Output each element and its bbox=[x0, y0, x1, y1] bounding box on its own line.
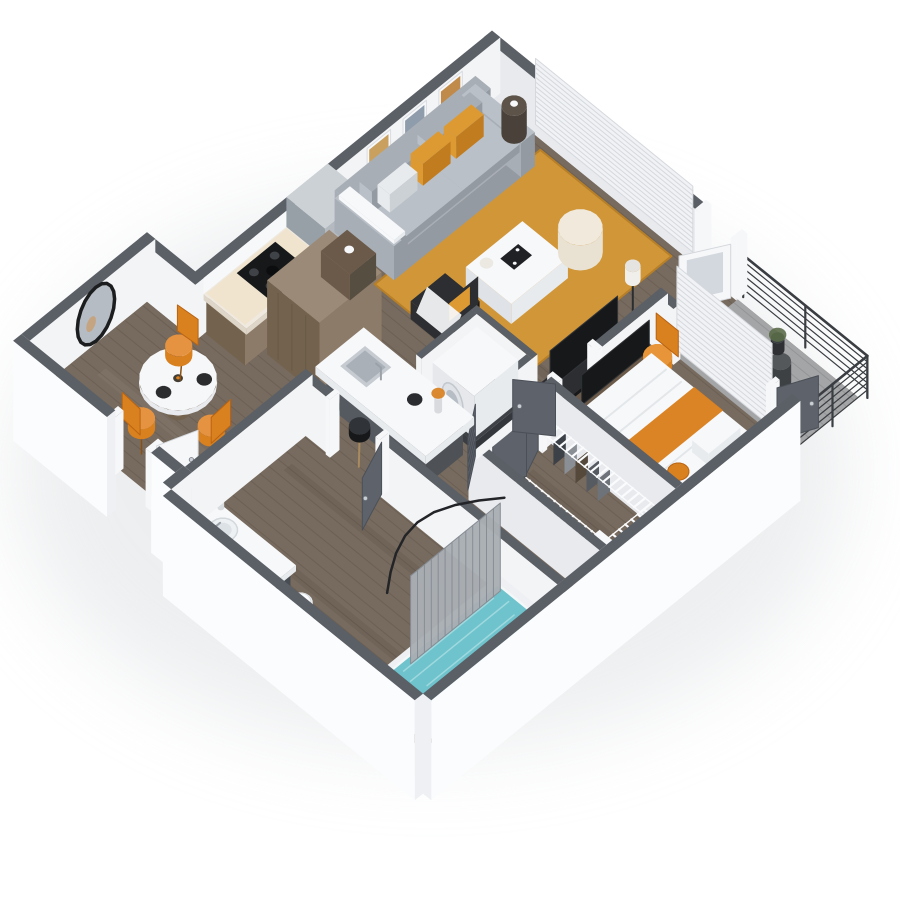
place-setting bbox=[156, 386, 172, 399]
wall-exterior-southwest bbox=[107, 410, 115, 517]
bathroom-door-handle bbox=[363, 496, 367, 500]
floorplan-page bbox=[0, 0, 900, 900]
decor-tray bbox=[480, 258, 494, 269]
bathroom-door-frame bbox=[326, 397, 330, 458]
bar-stool bbox=[349, 417, 370, 434]
bedroom-balcony-door-handle bbox=[810, 401, 814, 405]
wall-exterior-southeast bbox=[423, 694, 431, 801]
pouf bbox=[558, 209, 602, 245]
balcony-plant bbox=[769, 328, 786, 342]
entry-door-frame bbox=[146, 449, 152, 511]
stove-burner bbox=[270, 252, 280, 260]
coffee-cup bbox=[344, 246, 354, 254]
floor-lamp-shade bbox=[625, 260, 641, 273]
decor-bowl bbox=[407, 393, 422, 406]
balcony-bistro-table bbox=[770, 353, 791, 370]
floorplan-3d-render bbox=[0, 0, 900, 900]
stove-burner bbox=[249, 268, 259, 276]
balcony-door-frame bbox=[731, 238, 737, 301]
coffee-cup bbox=[510, 101, 518, 107]
wall-exterior-bath bbox=[415, 694, 423, 801]
balcony-door-frame bbox=[736, 234, 747, 301]
chess-piece bbox=[513, 262, 517, 265]
flowers bbox=[431, 388, 445, 399]
bedroom-door-handle bbox=[517, 404, 521, 408]
place-setting bbox=[197, 373, 212, 386]
bathroom-door-frame bbox=[330, 392, 340, 458]
bar-stool-legs bbox=[359, 441, 360, 467]
